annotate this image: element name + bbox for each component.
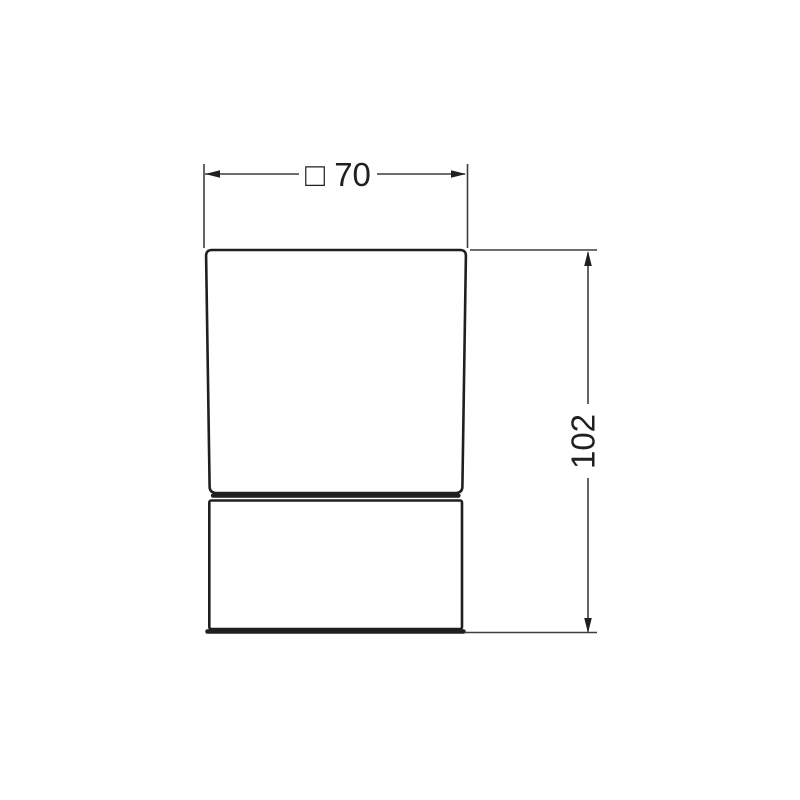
height-arrow-bottom-icon — [584, 618, 592, 633]
width-dimension-label: □ 70 — [305, 156, 371, 193]
glass-body-outline — [206, 250, 466, 493]
height-arrow-top-icon — [584, 251, 592, 266]
width-arrow-right-icon — [451, 170, 466, 178]
holder-base-outline — [209, 501, 462, 630]
technical-drawing-page: □ 70 102 — [0, 0, 800, 800]
dimension-arrowheads — [205, 170, 592, 633]
dimension-lines — [204, 164, 597, 633]
height-dimension-label: 102 — [565, 414, 602, 469]
technical-drawing-canvas: □ 70 102 — [0, 0, 800, 800]
width-arrow-left-icon — [205, 170, 220, 178]
object-outlines — [206, 250, 466, 632]
